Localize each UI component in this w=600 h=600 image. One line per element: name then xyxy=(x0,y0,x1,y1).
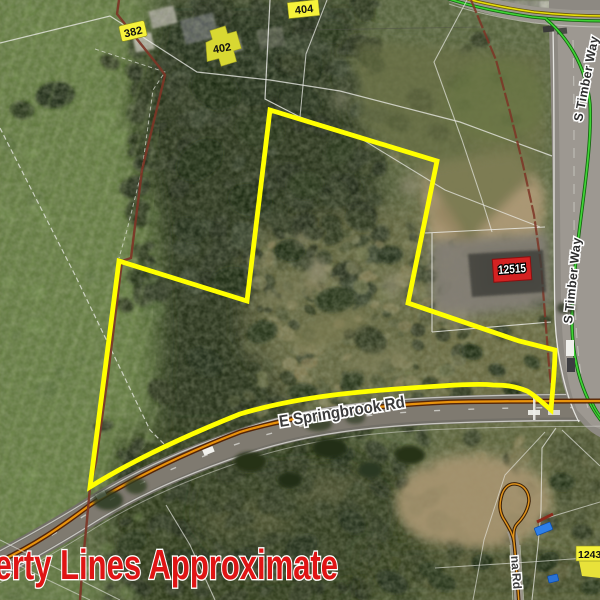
svg-text:404: 404 xyxy=(294,3,314,17)
svg-text:1243: 1243 xyxy=(578,549,600,561)
svg-text:Property Lines Approximate: Property Lines Approximate xyxy=(0,541,338,588)
svg-text:na Rd: na Rd xyxy=(508,555,524,589)
svg-text:12515: 12515 xyxy=(498,261,527,277)
